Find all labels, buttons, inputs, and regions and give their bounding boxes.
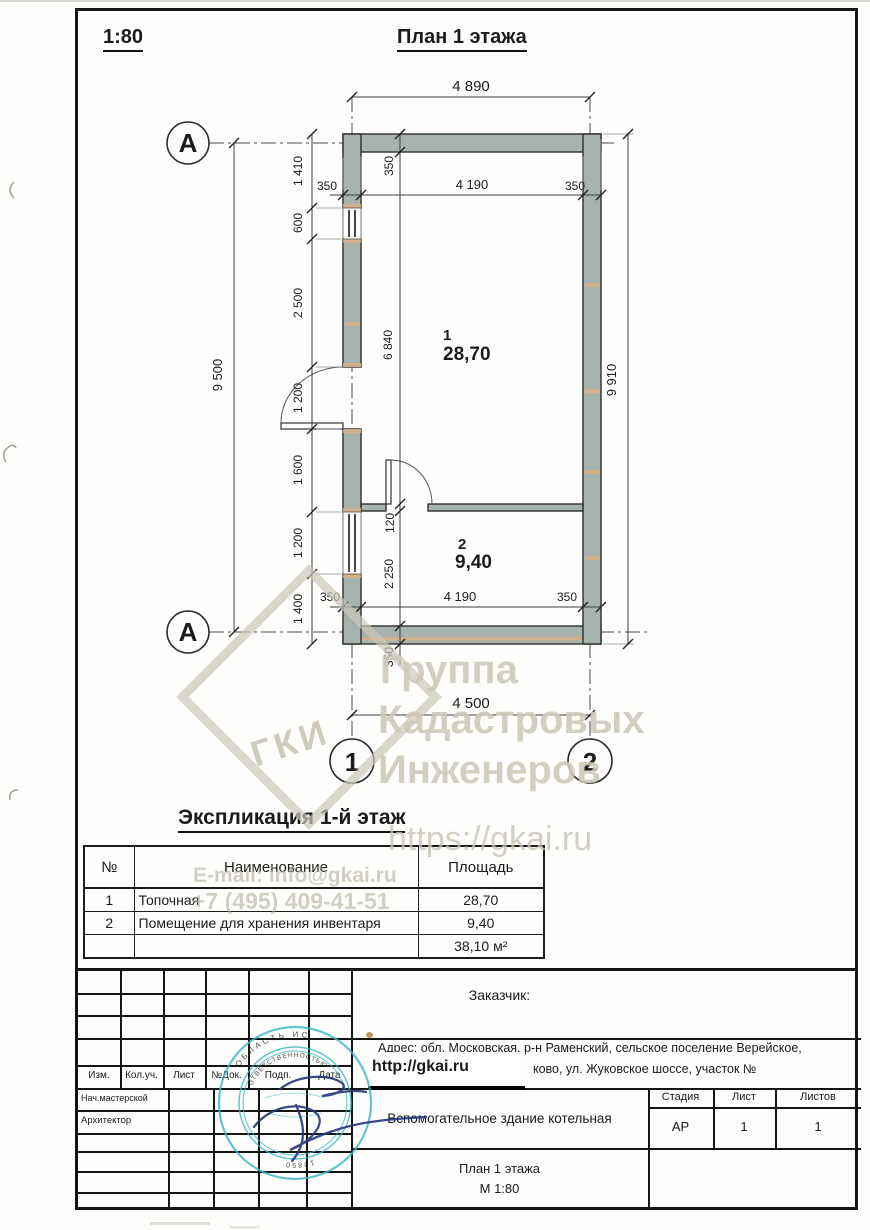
table-row: 38,10 м²: [84, 934, 544, 958]
dim-label: 350: [320, 590, 340, 604]
stage-label: Стадия: [648, 1091, 713, 1103]
dim-label: 120: [383, 513, 397, 533]
col-header-num: №: [84, 846, 134, 888]
col-header-area: Площадь: [418, 846, 544, 888]
svg-text:А: А: [179, 617, 198, 647]
axis-bubble-row-top: А: [167, 122, 209, 164]
axis-bubble-row-bottom: А: [167, 611, 209, 653]
dim-label: 9 500: [210, 359, 225, 392]
svg-text:1: 1: [345, 747, 359, 777]
svg-text:А: А: [179, 128, 198, 158]
signatures: [230, 1075, 450, 1175]
dim-label: 1 200: [291, 528, 305, 558]
cell-area: 9,40: [418, 911, 544, 934]
dim-label: 4 190: [456, 177, 489, 192]
table-row: 1 Топочная 28,70: [84, 888, 544, 911]
customer-label: Заказчик:: [351, 987, 648, 1003]
sheet-scale: М 1:80: [351, 1181, 648, 1196]
cell-name: Топочная: [134, 888, 418, 911]
sheets-label: Листов: [775, 1091, 861, 1103]
dim-label: 350: [382, 647, 396, 667]
explication-table: № Наименование Площадь 1 Топочная 28,70 …: [83, 845, 545, 959]
col-header-name: Наименование: [134, 846, 418, 888]
rev-label-izm: Изм.: [78, 1070, 120, 1081]
explication-heading: Экспликация 1-й этаж: [178, 806, 405, 833]
room-number: 2: [458, 536, 466, 553]
table-header-row: № Наименование Площадь: [84, 846, 544, 888]
dim-label: 350: [317, 179, 337, 193]
dim-label: 350: [557, 590, 577, 604]
role-architect: Архитектор: [81, 1115, 131, 1126]
role-chief: Нач.мастерской: [81, 1093, 148, 1103]
dim-label: 2 500: [291, 288, 305, 318]
dim-label: 4 890: [452, 78, 490, 95]
signature-architect: [254, 1106, 426, 1150]
sheet-value: 1: [713, 1119, 775, 1134]
signature-architect-stroke: [292, 1105, 303, 1161]
dim-label: 1 410: [291, 156, 305, 186]
cell-area: 28,70: [418, 888, 544, 911]
dim-label: 4 500: [452, 695, 490, 712]
svg-text:2: 2: [583, 747, 597, 777]
dim-label: 2 250: [382, 559, 396, 589]
dim-label: 350: [382, 156, 396, 176]
cell-num: 1: [84, 888, 134, 911]
dim-label: 600: [291, 213, 305, 233]
axis-bubble-col-1: 1: [330, 739, 374, 783]
cell-name: Помещение для хранения инвентаря: [134, 911, 418, 934]
cell-num: 2: [84, 911, 134, 934]
signature-chief: [280, 1077, 366, 1096]
address-line2: ково, ул. Жуковское шоссе, участок №: [533, 1062, 756, 1076]
dim-label: 1 600: [291, 455, 305, 485]
rev-label-list: Лист: [163, 1070, 205, 1081]
stage-value: АР: [648, 1119, 713, 1134]
room-area: 28,70: [443, 344, 491, 365]
cell-name: [134, 934, 418, 958]
dim-label: 350: [565, 179, 585, 193]
sheets-value: 1: [775, 1119, 861, 1134]
axis-bubble-col-2: 2: [568, 739, 612, 783]
sheet-label: Лист: [713, 1091, 775, 1103]
interior-door: [386, 460, 432, 504]
rev-label-koluch: Кол.уч.: [120, 1070, 163, 1081]
room-number: 1: [443, 327, 451, 344]
dim-label: 9 910: [604, 364, 619, 397]
cell-num: [84, 934, 134, 958]
table-row: 2 Помещение для хранения инвентаря 9,40: [84, 911, 544, 934]
site-link-text: http://gkai.ru: [368, 1052, 469, 1076]
dim-label: 6 840: [381, 330, 395, 360]
dim-label: 1 400: [291, 594, 305, 624]
scanned-drawing-page: 1:80 План 1 этажа: [0, 0, 870, 1230]
room-area: 9,40: [455, 552, 492, 573]
cell-total-area: 38,10 м²: [418, 934, 544, 958]
dim-label: 1 200: [291, 383, 305, 413]
dim-label: 4 190: [444, 589, 477, 604]
